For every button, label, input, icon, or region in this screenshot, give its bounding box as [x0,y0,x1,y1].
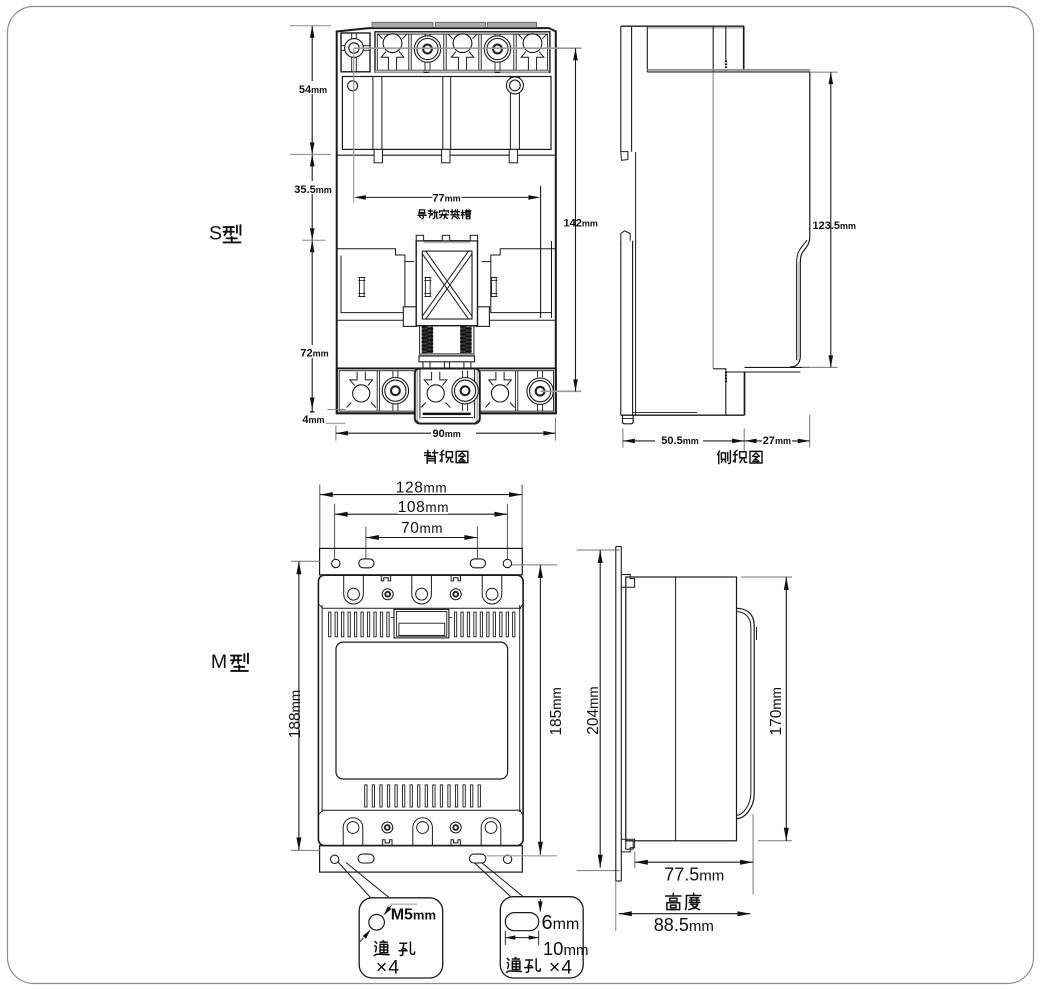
svg-text:M5mm: M5mm [391,907,436,924]
svg-text:204mm: 204mm [585,686,602,734]
svg-text:170mm: 170mm [768,687,785,735]
svg-text:×4: ×4 [549,957,573,979]
svg-text:4mm: 4mm [302,414,324,426]
svg-text:90mm: 90mm [433,428,461,440]
svg-text:88.5mm: 88.5mm [654,915,714,935]
svg-text:77mm: 77mm [432,193,460,205]
svg-text:6mm: 6mm [542,912,580,934]
svg-text:×4: ×4 [376,957,400,979]
svg-text:108mm: 108mm [398,499,449,516]
svg-text:123.5mm: 123.5mm [813,220,857,232]
svg-text:70mm: 70mm [401,520,443,537]
svg-text:185mm: 185mm [548,687,565,735]
svg-text:142mm: 142mm [564,218,598,230]
svg-text:54mm: 54mm [299,84,327,96]
svg-text:50.5mm: 50.5mm [661,435,698,447]
svg-text:M: M [211,651,227,673]
svg-text:35.5mm: 35.5mm [294,184,331,196]
svg-text:77.5mm: 77.5mm [664,865,724,885]
svg-text:72mm: 72mm [300,348,328,360]
svg-text:S: S [209,223,222,245]
svg-text:27mm: 27mm [763,435,791,447]
svg-text:128mm: 128mm [396,480,447,497]
svg-text:188mm: 188mm [287,690,304,738]
